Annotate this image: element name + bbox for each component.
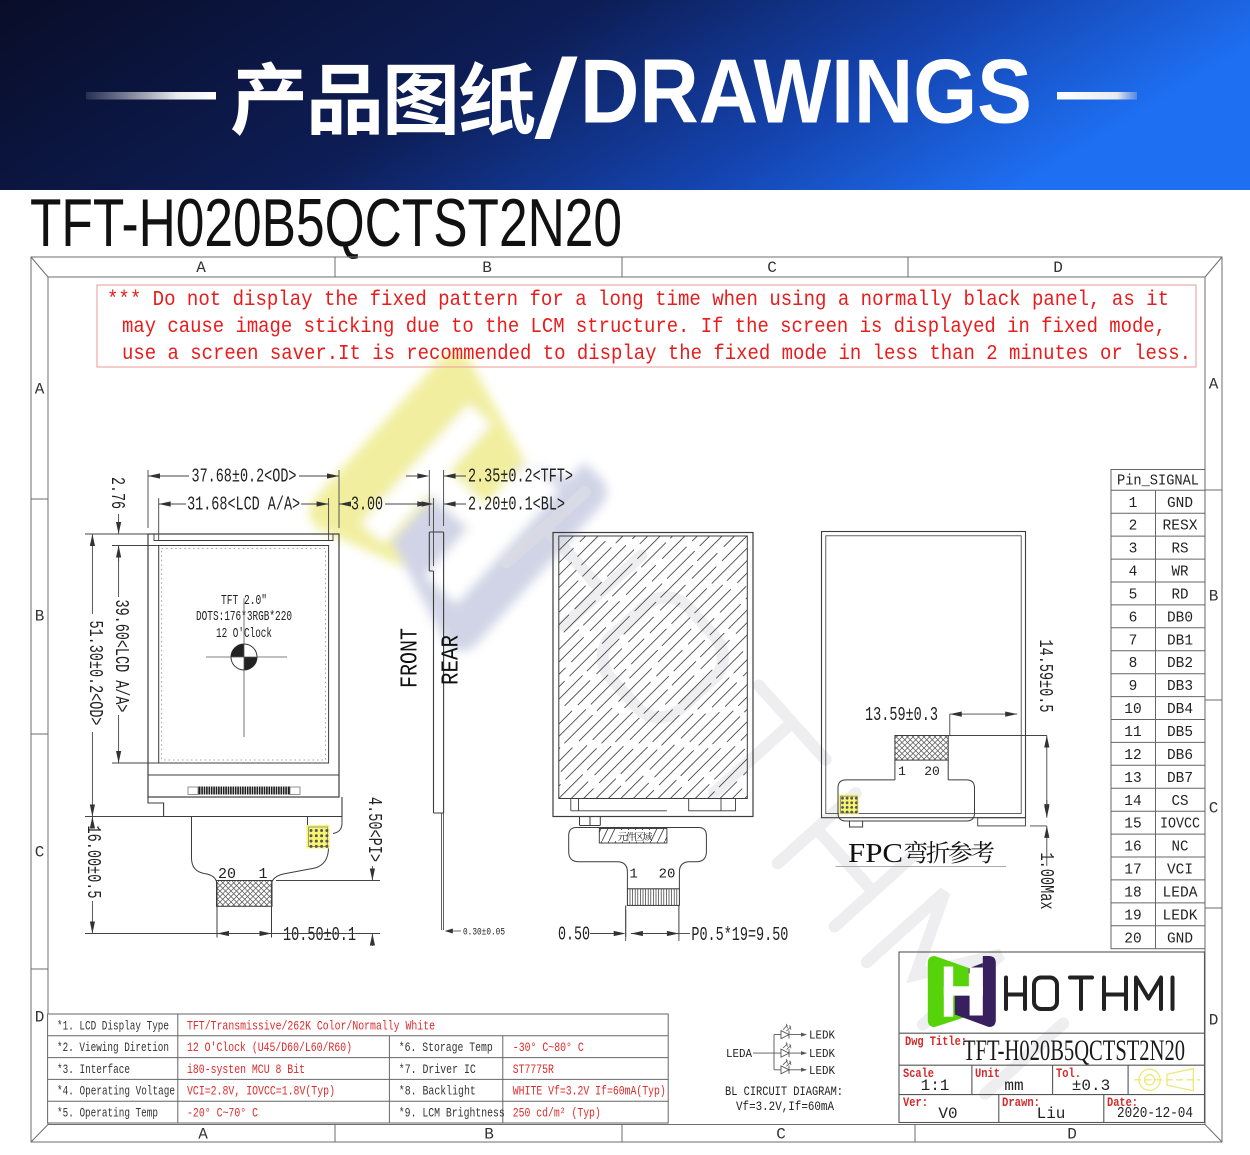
svg-text:LEDK: LEDK: [809, 1065, 835, 1078]
svg-text:i80-systen MCU 8 Bit: i80-systen MCU 8 Bit: [187, 1062, 305, 1077]
svg-text:B: B: [1209, 588, 1219, 606]
svg-text:*7. Driver IC: *7. Driver IC: [399, 1062, 476, 1077]
svg-text:C: C: [35, 844, 45, 862]
svg-text:*6. Storage Temp: *6. Storage Temp: [399, 1040, 493, 1055]
svg-text:2: 2: [1129, 519, 1138, 535]
svg-text:20: 20: [1124, 931, 1141, 947]
svg-text:12 O'Clock (U45/D60/L60/R60): 12 O'Clock (U45/D60/L60/R60): [187, 1040, 352, 1055]
svg-text:3.00: 3.00: [351, 494, 383, 516]
svg-text:5: 5: [1129, 588, 1138, 604]
svg-text:IOVCC: IOVCC: [1160, 817, 1200, 833]
svg-text:2.20±0.1<BL>: 2.20±0.1<BL>: [468, 494, 565, 516]
svg-text:0.50: 0.50: [558, 924, 590, 946]
svg-text:6: 6: [1129, 610, 1138, 626]
svg-text:B: B: [484, 1126, 494, 1144]
svg-text:D: D: [1209, 1012, 1219, 1030]
svg-text:Ver:: Ver:: [903, 1096, 928, 1110]
svg-text:*** Do not display the fixed p: *** Do not display the fixed pattern for…: [107, 289, 1169, 312]
svg-text:*2. Viewing Diretion: *2. Viewing Diretion: [57, 1040, 169, 1055]
svg-text:*3. Interface: *3. Interface: [57, 1062, 130, 1077]
svg-text:14.59±0.5: 14.59±0.5: [1034, 640, 1056, 713]
svg-text:C: C: [1209, 800, 1219, 818]
svg-text:A: A: [35, 381, 45, 399]
svg-text:C: C: [767, 259, 777, 277]
svg-text:DB6: DB6: [1167, 748, 1193, 764]
svg-text:VCI=2.8V, IOVCC=1.8V(Typ): VCI=2.8V, IOVCC=1.8V(Typ): [187, 1084, 335, 1099]
svg-text:13: 13: [1124, 771, 1141, 787]
svg-text:A: A: [196, 259, 206, 277]
svg-text:*8. Backlight: *8. Backlight: [399, 1084, 476, 1099]
svg-text:B: B: [482, 259, 492, 277]
svg-text:-20° C~70° C: -20° C~70° C: [187, 1106, 258, 1121]
svg-text:20: 20: [659, 867, 676, 883]
svg-text:A: A: [198, 1126, 208, 1144]
svg-text:D: D: [35, 1009, 45, 1027]
svg-text:*5. Operating Temp: *5. Operating Temp: [57, 1106, 158, 1121]
svg-text:37.68±0.2<OD>: 37.68±0.2<OD>: [192, 466, 297, 488]
svg-text:19: 19: [1124, 908, 1141, 924]
svg-text:17: 17: [1124, 863, 1141, 879]
svg-text:VCI: VCI: [1167, 863, 1193, 879]
svg-text:A: A: [1209, 376, 1219, 394]
svg-text:12: 12: [1124, 748, 1141, 764]
svg-text:15: 15: [1124, 817, 1141, 833]
svg-text:2.76: 2.76: [106, 477, 128, 509]
svg-text:V0: V0: [938, 1105, 957, 1123]
svg-text:REAR: REAR: [439, 635, 466, 685]
svg-text:-30° C~80° C: -30° C~80° C: [513, 1040, 584, 1055]
svg-text:mm: mm: [1004, 1077, 1023, 1095]
svg-text:WHITE Vf=3.2V If=60mA(Typ): WHITE Vf=3.2V If=60mA(Typ): [513, 1084, 666, 1099]
svg-text:1: 1: [898, 764, 906, 779]
svg-text:4: 4: [1129, 565, 1138, 581]
svg-text:ST7775R: ST7775R: [513, 1062, 554, 1077]
svg-text:DB7: DB7: [1167, 771, 1193, 787]
svg-text:Unit: Unit: [975, 1067, 1000, 1081]
svg-text:TFT-H020B5QCTST2N20: TFT-H020B5QCTST2N20: [30, 185, 622, 261]
svg-text:2020-12-04: 2020-12-04: [1117, 1105, 1193, 1122]
svg-text:10: 10: [1124, 702, 1141, 718]
svg-text:CS: CS: [1172, 794, 1189, 810]
svg-text:GND: GND: [1167, 496, 1193, 512]
svg-text:*4. Operating Voltage: *4. Operating Voltage: [57, 1084, 175, 1099]
svg-text:BL CIRCUIT DIAGRAM:: BL CIRCUIT DIAGRAM:: [725, 1084, 843, 1099]
svg-text:Liu: Liu: [1037, 1105, 1066, 1123]
svg-text:*9. LCM Brightness: *9. LCM Brightness: [399, 1106, 505, 1121]
svg-text:DB3: DB3: [1167, 679, 1193, 695]
svg-text:GND: GND: [1167, 931, 1193, 947]
svg-text:LEDK: LEDK: [809, 1048, 835, 1061]
svg-text:B: B: [35, 608, 45, 626]
svg-text:WR: WR: [1172, 565, 1189, 581]
svg-text:3: 3: [1129, 542, 1138, 558]
svg-text:Dwg Title:: Dwg Title:: [905, 1035, 967, 1049]
svg-text:±0.3: ±0.3: [1072, 1077, 1110, 1095]
svg-text:DB1: DB1: [1167, 633, 1193, 649]
svg-text:RS: RS: [1172, 542, 1189, 558]
svg-text:13.59±0.3: 13.59±0.3: [865, 704, 938, 726]
svg-text:4.50<PI>: 4.50<PI>: [363, 797, 385, 862]
svg-text:1: 1: [1129, 496, 1138, 512]
svg-text:use a screen saver.It is recom: use a screen saver.It is recommended to …: [122, 343, 1191, 366]
svg-text:7: 7: [1129, 633, 1138, 649]
svg-text:1:1: 1:1: [921, 1077, 950, 1095]
svg-text:31.68<LCD A/A>: 31.68<LCD A/A>: [187, 494, 300, 516]
svg-text:C: C: [776, 1126, 786, 1144]
svg-text:0.30±0.05: 0.30±0.05: [463, 928, 505, 939]
svg-text:TFT-H020B5QCTST2N20: TFT-H020B5QCTST2N20: [963, 1034, 1185, 1067]
svg-text:1.00Max: 1.00Max: [1035, 853, 1057, 910]
svg-text:18: 18: [1124, 885, 1141, 901]
svg-text:TFT/Transmissive/262K Color/No: TFT/Transmissive/262K Color/Normally Whi…: [187, 1018, 435, 1033]
svg-text:1: 1: [629, 867, 637, 883]
svg-text:P0.5*19=9.50: P0.5*19=9.50: [691, 924, 788, 946]
svg-text:Drawn:: Drawn:: [1002, 1096, 1040, 1110]
svg-text:DB4: DB4: [1167, 702, 1193, 718]
svg-text:FRONT: FRONT: [398, 628, 425, 688]
svg-text:LEDA: LEDA: [726, 1048, 752, 1061]
svg-text:may cause image sticking due t: may cause image sticking due to the LCM …: [122, 316, 1166, 339]
svg-text:DB5: DB5: [1167, 725, 1193, 741]
svg-text:Pin_SIGNAL: Pin_SIGNAL: [1117, 474, 1199, 490]
svg-text:NC: NC: [1172, 840, 1189, 856]
svg-text:DRAWINGS: DRAWINGS: [580, 42, 1032, 143]
svg-text:Vf=3.2V,If=60mA: Vf=3.2V,If=60mA: [736, 1099, 834, 1114]
svg-text:20: 20: [924, 764, 940, 779]
svg-text:39.60<LCD A/A>: 39.60<LCD A/A>: [110, 600, 132, 713]
svg-text:9: 9: [1129, 679, 1138, 695]
svg-text:LEDA: LEDA: [1163, 885, 1198, 901]
svg-text:DB2: DB2: [1167, 656, 1193, 672]
svg-text:2.35±0.2<TFT>: 2.35±0.2<TFT>: [468, 466, 573, 488]
svg-text:LEDK: LEDK: [1163, 908, 1198, 924]
svg-text:14: 14: [1124, 794, 1141, 810]
svg-text:LEDK: LEDK: [809, 1030, 835, 1043]
svg-text:FPC: FPC: [848, 838, 903, 868]
svg-text:51.30±0.2<OD>: 51.30±0.2<OD>: [84, 621, 106, 726]
svg-text:16: 16: [1124, 840, 1141, 856]
svg-text:11: 11: [1124, 725, 1141, 741]
svg-text:*1. LCD Display Type: *1. LCD Display Type: [57, 1018, 169, 1033]
svg-text:8: 8: [1129, 656, 1138, 672]
svg-text:10.50±0.1: 10.50±0.1: [283, 924, 356, 946]
svg-text:DB0: DB0: [1167, 610, 1193, 626]
svg-text:D: D: [1067, 1126, 1077, 1144]
svg-text:RESX: RESX: [1163, 519, 1198, 535]
svg-text:RD: RD: [1172, 588, 1189, 604]
svg-text:D: D: [1053, 259, 1063, 277]
svg-text:16.00±0.5: 16.00±0.5: [82, 826, 104, 899]
svg-text:250 cd/m² (Typ): 250 cd/m² (Typ): [513, 1106, 601, 1121]
